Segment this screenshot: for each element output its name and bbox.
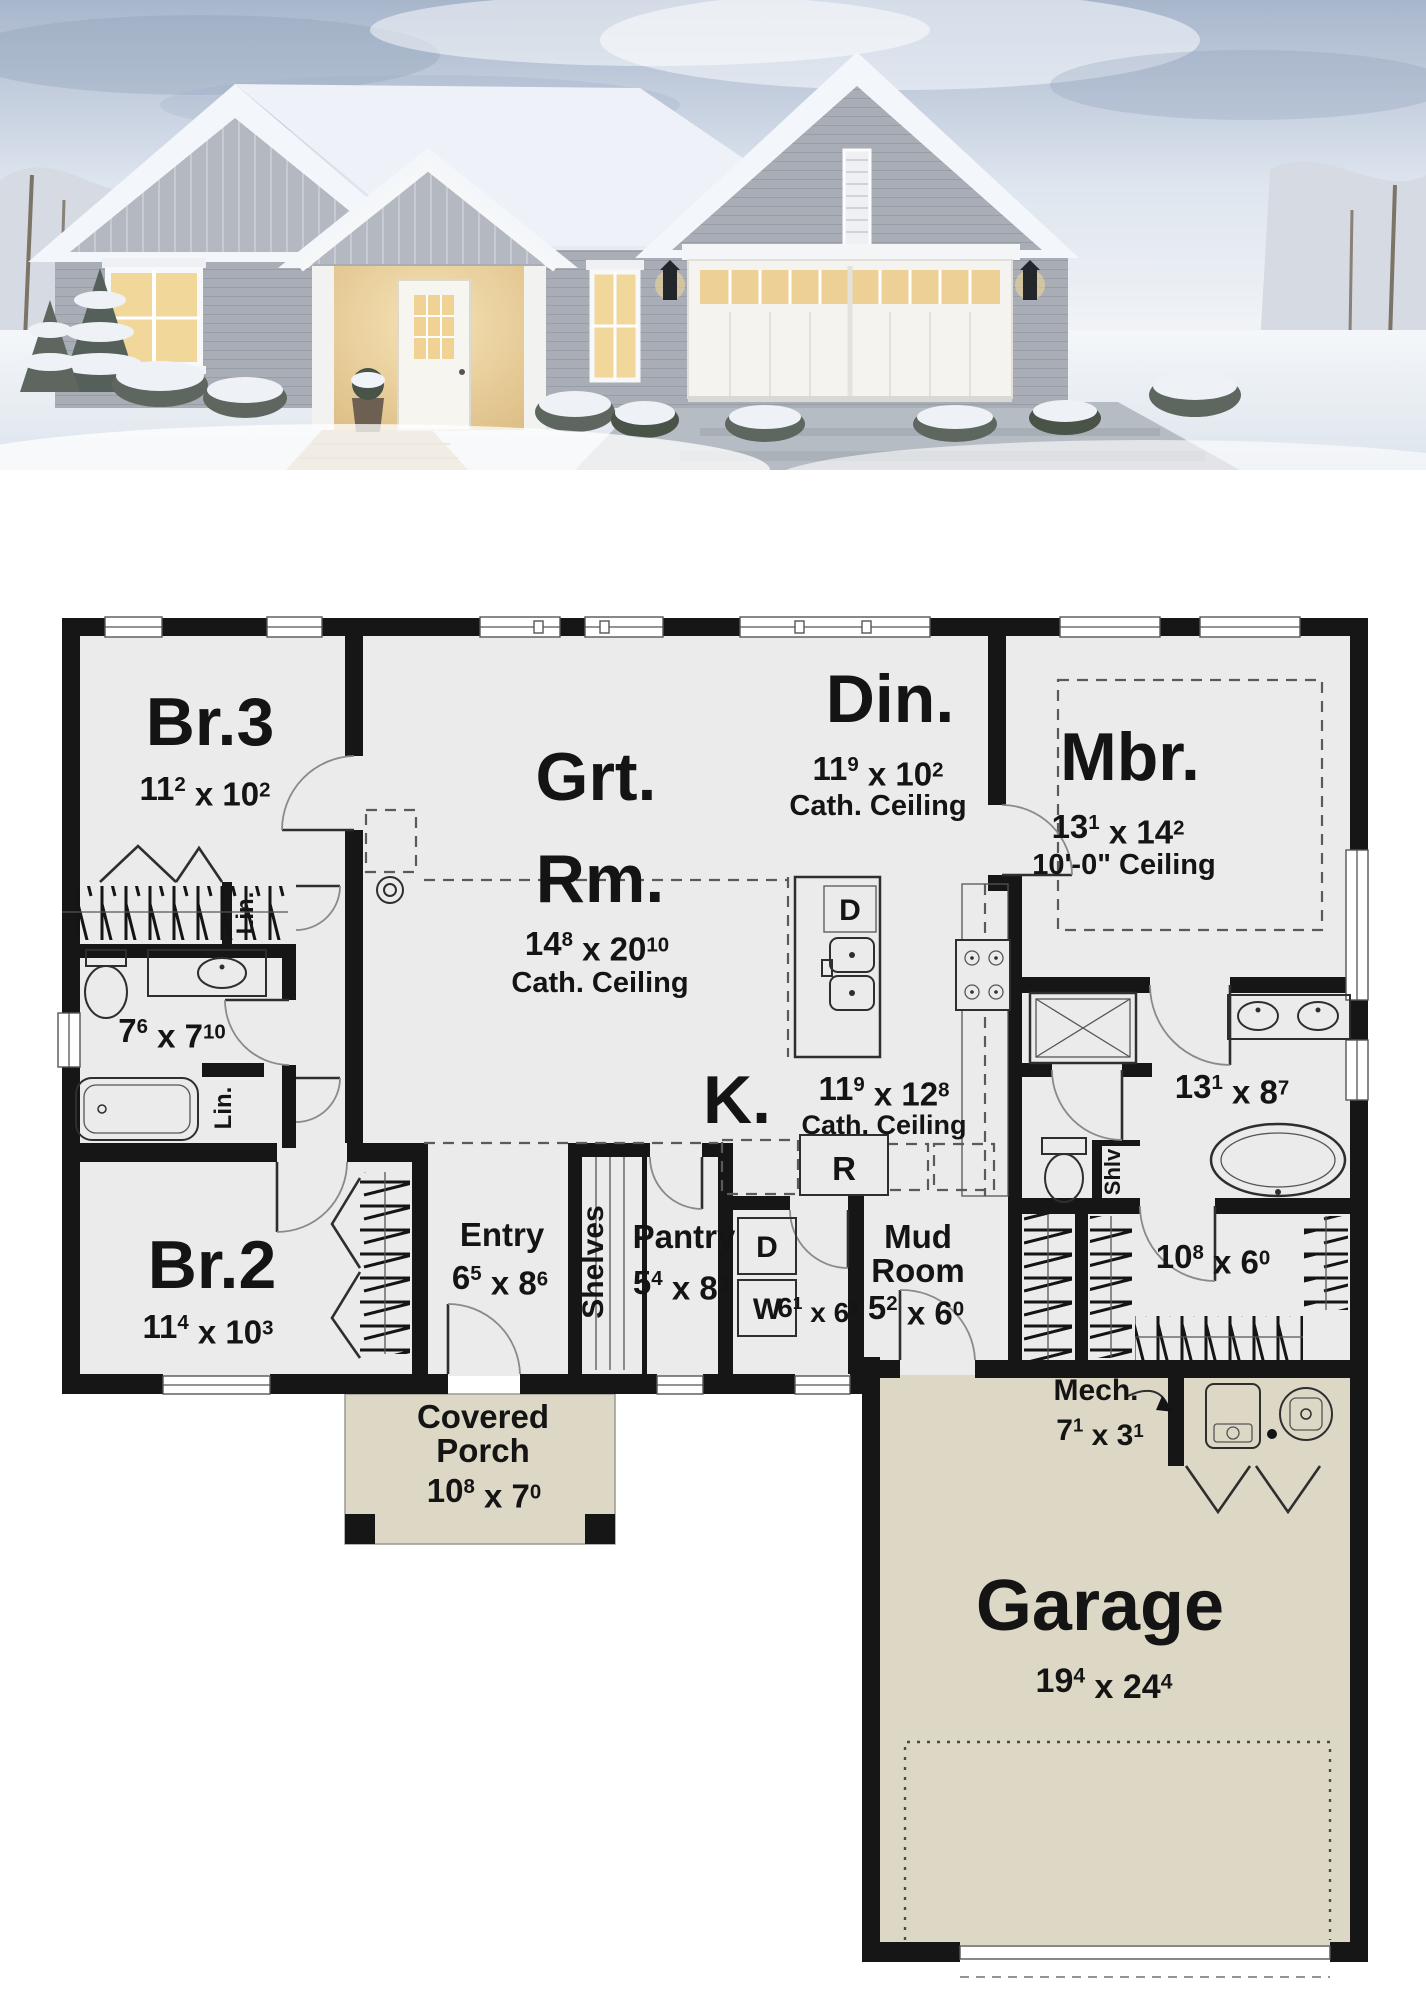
room-ceiling-mbr: 10'-0" Ceiling	[1032, 849, 1215, 881]
room-label-br2: Br.2	[148, 1227, 277, 1303]
room-label-br3: Br.3	[146, 684, 275, 760]
room-dims-laundry: 61 x 63	[777, 1292, 859, 1328]
room-label-din: Din.	[826, 661, 954, 737]
freestanding-tub-icon	[1211, 1124, 1345, 1196]
room-dims-mech: 71 x 31	[1056, 1414, 1143, 1452]
room-ceiling-kitchen: Cath. Ceiling	[801, 1110, 966, 1140]
porch-post	[345, 1514, 375, 1544]
room-dims-mud: 52 x 60	[868, 1289, 964, 1332]
room-dims-pantry: 54 x 83	[633, 1264, 729, 1307]
garage-door	[682, 244, 1020, 402]
label-refrigerator: R	[832, 1150, 856, 1187]
label-shelves: Shelves	[577, 1205, 610, 1318]
screenshot: Br.3 112 x 102 Grt. Rm. 148 x 2010 Cath.…	[0, 0, 1426, 2000]
label-dryer: D	[756, 1231, 778, 1264]
room-dims-entry: 65 x 86	[452, 1259, 548, 1302]
room-label-mbr: Mbr.	[1060, 719, 1200, 795]
room-dims-kitchen: 119 x 128	[818, 1070, 949, 1113]
room-ceiling-grt: Cath. Ceiling	[511, 967, 688, 999]
room-dims-br3: 112 x 102	[139, 770, 270, 813]
room-label-mud-1: Mud	[884, 1218, 952, 1255]
room-label-mud-2: Room	[871, 1252, 965, 1289]
label-linen-2: Lin.	[210, 1087, 237, 1130]
room-label-garage: Garage	[976, 1566, 1224, 1646]
porch-post	[585, 1514, 615, 1544]
room-dims-mbr: 131 x 142	[1052, 808, 1185, 851]
room-label-porch-2: Porch	[436, 1432, 530, 1469]
kitchen-island	[795, 877, 880, 1057]
range-icon	[956, 940, 1010, 1010]
room-dims-mbath: 131 x 87	[1175, 1068, 1290, 1111]
door-knob	[459, 369, 465, 375]
wic-hangers-bottom	[1135, 1316, 1303, 1360]
room-label-grt-2: Rm.	[536, 841, 664, 917]
house-photo	[0, 0, 1426, 470]
room-label-mech: Mech.	[1053, 1374, 1138, 1407]
room-label-porch-1: Covered	[417, 1398, 549, 1435]
room-label-pantry: Pantry	[633, 1218, 736, 1255]
floor-plan: Br.3 112 x 102 Grt. Rm. 148 x 2010 Cath.…	[0, 470, 1426, 2000]
label-shlv: Shlv	[1100, 1148, 1125, 1195]
room-dims-din: 119 x 102	[812, 750, 943, 793]
label-linen-1: Lin.	[232, 892, 259, 935]
room-dims-wic: 108 x 60	[1156, 1238, 1271, 1281]
floor-plan-drawing: Br.3 112 x 102 Grt. Rm. 148 x 2010 Cath.…	[0, 470, 1426, 2000]
porch-post-left	[312, 266, 334, 430]
garage-door-sill	[960, 1946, 1330, 1959]
house-photo-art	[0, 0, 1426, 470]
room-dims-br2: 114 x 103	[142, 1308, 273, 1351]
room-label-entry: Entry	[460, 1216, 545, 1253]
label-island-dishwasher: D	[839, 894, 861, 927]
room-dims-garage: 194 x 244	[1036, 1662, 1173, 1706]
room-dims-porch: 108 x 70	[427, 1472, 542, 1515]
front-door-glass	[414, 295, 454, 359]
gable-vent	[844, 150, 870, 250]
room-label-grt-1: Grt.	[536, 739, 657, 815]
room-ceiling-din: Cath. Ceiling	[789, 790, 966, 822]
room-label-kitchen: K.	[703, 1062, 771, 1138]
